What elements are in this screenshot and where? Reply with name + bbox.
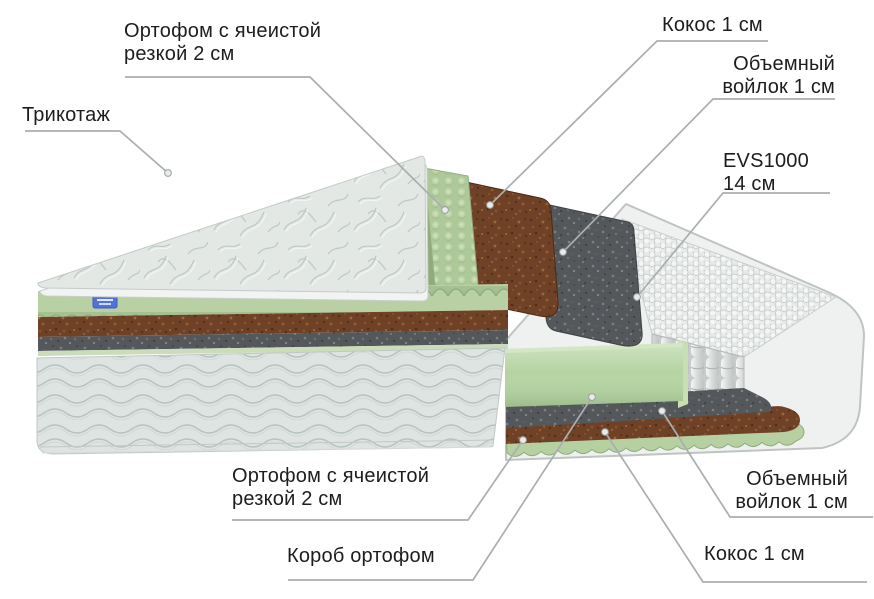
- label-ortofoam-bottom: Ортофом с ячеистой резкой 2 см: [232, 465, 429, 511]
- label-foam-box: Короб ортофом: [287, 545, 435, 568]
- label-tricot: Трикотаж: [22, 104, 110, 127]
- label-felt-top: Объемный войлок 1 см: [722, 53, 835, 99]
- mattress-layers-diagram: Ортофом с ячеистой резкой 2 см Трикотаж …: [0, 0, 874, 599]
- label-springs: EVS1000 14 см: [723, 150, 809, 196]
- mattress-body: [37, 348, 505, 454]
- label-felt-bottom: Объемный войлок 1 см: [735, 468, 848, 514]
- top-felt-sheet: [545, 204, 642, 346]
- label-coconut-top: Кокос 1 см: [662, 14, 763, 37]
- label-coconut-bottom: Кокос 1 см: [704, 543, 805, 566]
- label-ortofoam-top: Ортофом с ячеистой резкой 2 см: [124, 20, 321, 66]
- leader-tricot: [25, 131, 168, 173]
- quilt-top-cover: [38, 156, 428, 301]
- foam-box: [505, 340, 688, 408]
